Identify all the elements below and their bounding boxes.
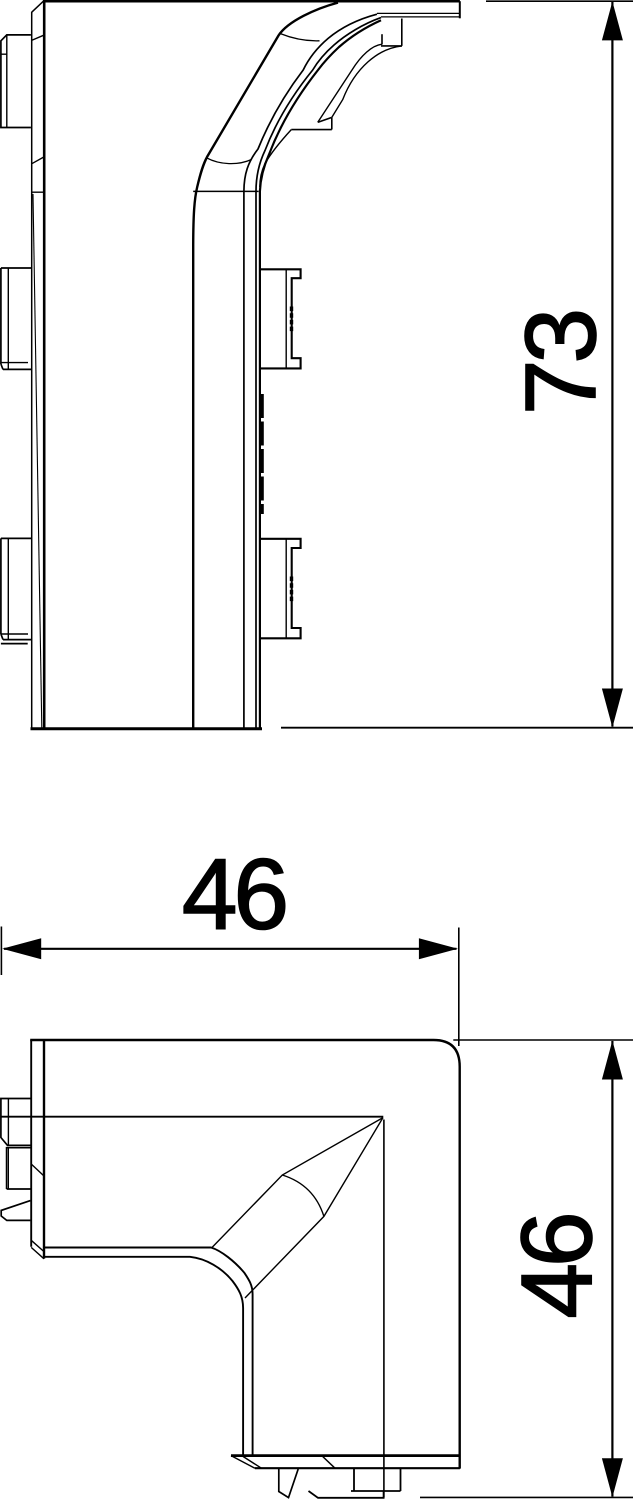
svg-text:46: 46 bbox=[501, 1215, 613, 1319]
svg-text:73: 73 bbox=[505, 312, 617, 416]
svg-text:46: 46 bbox=[182, 839, 286, 951]
